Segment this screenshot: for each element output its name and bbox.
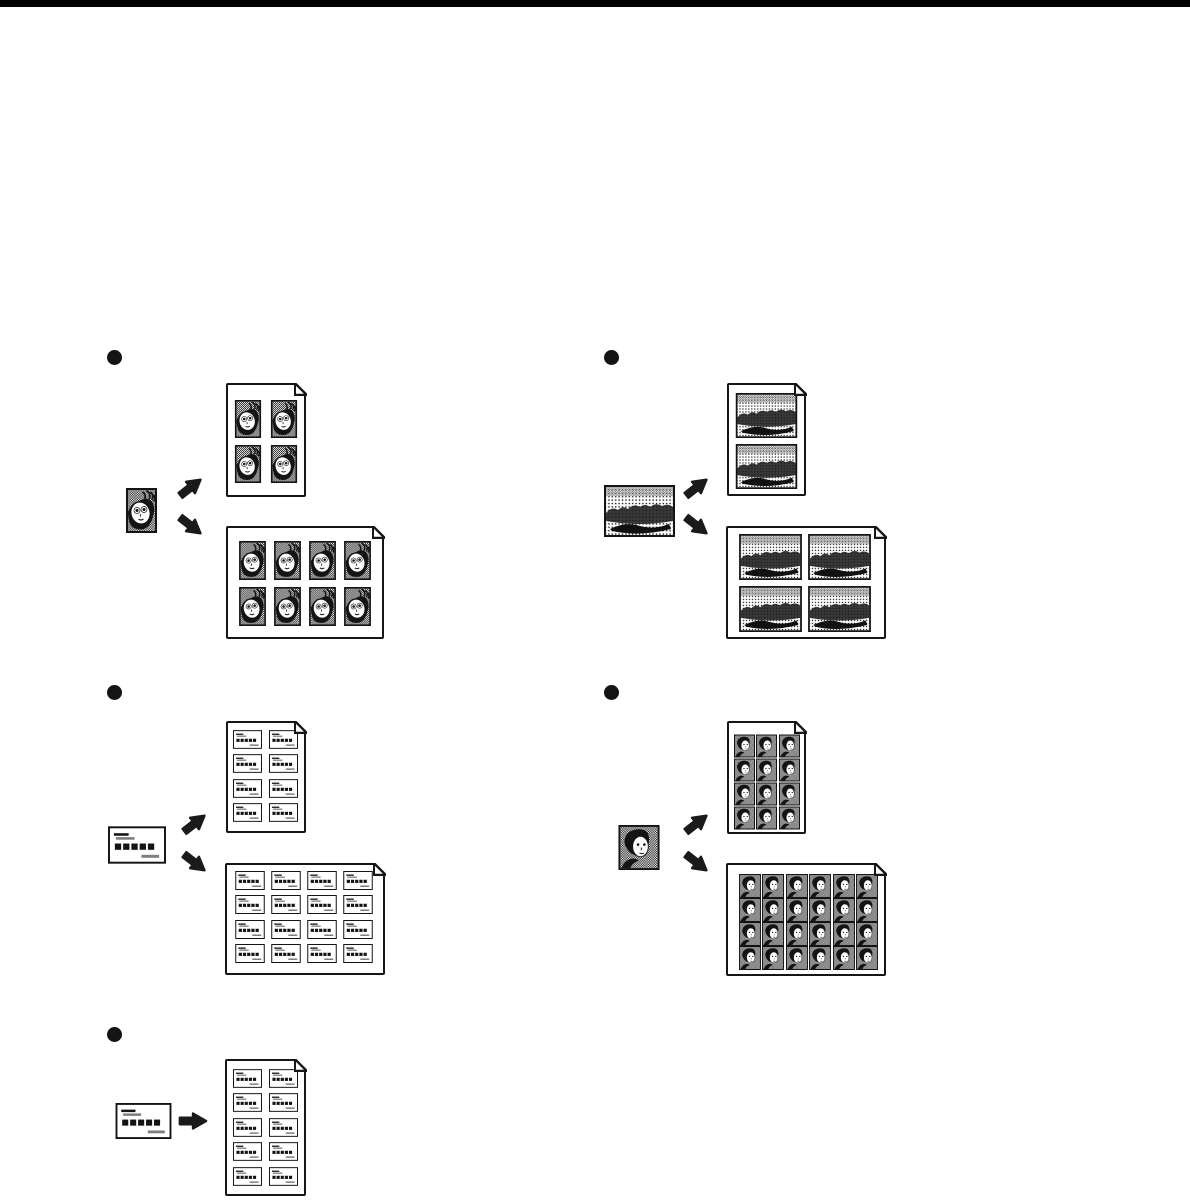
repeated-photo-portrait (270, 400, 298, 438)
arrow-up-right-icon (676, 467, 717, 507)
repeated-photo-landscape (808, 534, 871, 580)
repeated-business-card (233, 1142, 262, 1161)
repeated-business-card (343, 871, 373, 890)
repeated-photo-id (739, 874, 761, 898)
repeated-business-card (233, 779, 262, 798)
repeated-business-card (233, 1167, 262, 1186)
repeated-photo-id (762, 922, 784, 946)
repeated-photo-id (786, 898, 808, 922)
repeated-photo-landscape (734, 393, 799, 438)
bullet-marker (604, 350, 619, 365)
repeated-photo-id (779, 758, 800, 782)
repeated-business-card (233, 1069, 262, 1088)
repeated-photo-id (786, 922, 808, 946)
repeated-business-card (269, 803, 298, 822)
repeated-photo-id (856, 922, 878, 946)
repeated-business-card (269, 1167, 298, 1186)
output-sheet-portrait-10up (225, 1059, 306, 1196)
output-sheet-portrait-4up (226, 383, 306, 497)
repeated-business-card (307, 944, 337, 963)
repeated-business-card (307, 920, 337, 939)
repeated-photo-portrait (239, 541, 266, 580)
bullet-marker (107, 685, 122, 700)
arrow-up-right-icon (676, 803, 717, 843)
repeated-photo-portrait (239, 587, 266, 626)
repeated-business-card (307, 895, 337, 914)
repeated-photo-portrait (234, 400, 262, 438)
page-corner-fold-icon (372, 526, 385, 539)
repeated-photo-id (779, 782, 800, 806)
output-sheet-portrait-12up (727, 721, 806, 834)
repeated-business-card (269, 754, 298, 773)
repeated-photo-id (833, 898, 855, 922)
arrow-down-right-icon (676, 842, 717, 882)
output-sheet-landscape-8up (226, 526, 384, 639)
repeated-photo-id (762, 946, 784, 970)
page-corner-fold-icon (874, 863, 887, 876)
repeated-business-card (271, 920, 301, 939)
repeated-business-card (233, 730, 262, 749)
repeated-photo-id (856, 946, 878, 970)
repeated-photo-id (809, 922, 831, 946)
page-corner-fold-icon (874, 526, 887, 539)
output-sheet-landscape-4up (726, 526, 886, 639)
page-corner-fold-icon (794, 721, 807, 734)
page-corner-fold-icon (294, 383, 307, 396)
repeated-photo-id (833, 922, 855, 946)
repeated-business-card (233, 803, 262, 822)
page-top-rule (0, 0, 1190, 7)
output-sheet-portrait-8up (226, 721, 306, 833)
arrow-down-right-icon (170, 505, 211, 545)
repeated-photo-id (856, 898, 878, 922)
repeated-business-card (343, 944, 373, 963)
page-corner-fold-icon (373, 863, 386, 876)
repeated-business-card (233, 1118, 262, 1137)
repeated-photo-id (739, 898, 761, 922)
arrow-right-icon (177, 1107, 209, 1135)
repeated-business-card (269, 1118, 298, 1137)
repeated-photo-id (809, 946, 831, 970)
repeated-photo-id (833, 946, 855, 970)
repeated-photo-id (734, 782, 755, 806)
repeated-photo-id (809, 898, 831, 922)
manual-page: { "page": { "background_color": "#ffffff… (0, 0, 1190, 1203)
repeated-photo-portrait (344, 541, 371, 580)
repeated-business-card (235, 920, 265, 939)
repeated-photo-portrait (274, 587, 301, 626)
repeated-business-card (343, 895, 373, 914)
repeated-photo-id (734, 806, 755, 830)
repeated-photo-portrait (309, 587, 336, 626)
output-sheet-landscape-16up (225, 863, 385, 975)
arrow-down-right-icon (676, 505, 717, 545)
repeated-photo-id (809, 874, 831, 898)
repeated-photo-portrait (344, 587, 371, 626)
repeated-business-card (269, 1093, 298, 1112)
repeated-photo-portrait (234, 445, 262, 483)
output-sheet-portrait-2up (727, 383, 806, 496)
repeated-business-card (235, 871, 265, 890)
output-sheet-landscape-24up (726, 863, 886, 976)
repeated-business-card (271, 895, 301, 914)
repeated-photo-portrait (309, 541, 336, 580)
arrow-up-right-icon (170, 467, 211, 507)
repeated-business-card (235, 944, 265, 963)
repeated-photo-id (786, 874, 808, 898)
repeated-business-card (271, 871, 301, 890)
repeated-photo-id (734, 734, 755, 758)
bullet-marker (107, 350, 122, 365)
repeated-photo-id (762, 874, 784, 898)
repeated-photo-id (833, 874, 855, 898)
repeated-business-card (233, 754, 262, 773)
repeated-photo-id (739, 922, 761, 946)
arrow-down-right-icon (174, 842, 215, 882)
repeated-business-card (235, 895, 265, 914)
repeated-business-card (307, 871, 337, 890)
repeated-photo-landscape (739, 586, 802, 632)
repeated-photo-id (856, 874, 878, 898)
page-corner-fold-icon (294, 721, 307, 734)
repeated-business-card (269, 1142, 298, 1161)
repeated-photo-id (756, 782, 777, 806)
repeated-business-card (343, 920, 373, 939)
bullet-marker (107, 1027, 122, 1042)
repeated-business-card (233, 1093, 262, 1112)
portrait-photo-thumbnail (126, 488, 157, 533)
repeated-photo-id (779, 806, 800, 830)
business-card-thumbnail (114, 1103, 173, 1139)
repeated-photo-id (756, 758, 777, 782)
repeated-photo-id (734, 758, 755, 782)
repeated-photo-id (739, 946, 761, 970)
repeated-photo-id (756, 806, 777, 830)
repeated-photo-portrait (274, 541, 301, 580)
page-corner-fold-icon (794, 383, 807, 396)
repeated-business-card (271, 944, 301, 963)
business-card-thumbnail (108, 826, 166, 864)
arrow-up-right-icon (174, 803, 215, 843)
repeated-photo-id (786, 946, 808, 970)
repeated-business-card (269, 779, 298, 798)
bullet-marker (604, 685, 619, 700)
repeated-photo-landscape (734, 444, 799, 489)
page-corner-fold-icon (294, 1059, 307, 1072)
repeated-photo-id (779, 734, 800, 758)
repeated-photo-landscape (808, 586, 871, 632)
landscape-photo-thumbnail (604, 485, 675, 537)
repeated-photo-id (762, 898, 784, 922)
repeated-photo-id (756, 734, 777, 758)
repeated-photo-landscape (739, 534, 802, 580)
id-photo-thumbnail (618, 825, 660, 870)
repeated-photo-portrait (270, 445, 298, 483)
